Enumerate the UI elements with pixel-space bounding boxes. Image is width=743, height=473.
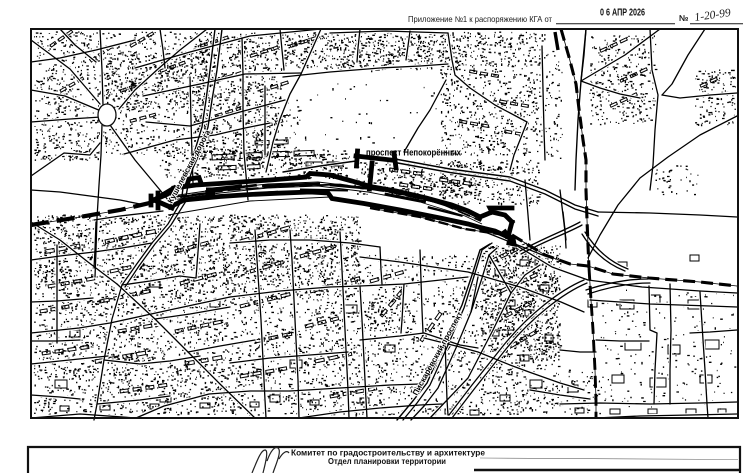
svg-text:0 6 АПР 2026: 0 6 АПР 2026 — [600, 7, 645, 19]
svg-text:Отдел планировки территории: Отдел планировки территории — [328, 457, 446, 466]
svg-text:проспект Непокорённых: проспект Непокорённых — [366, 148, 461, 158]
svg-text:№: № — [679, 13, 689, 23]
svg-text:Приложение №1 к распоряжению К: Приложение №1 к распоряжению КГА от — [408, 15, 552, 24]
